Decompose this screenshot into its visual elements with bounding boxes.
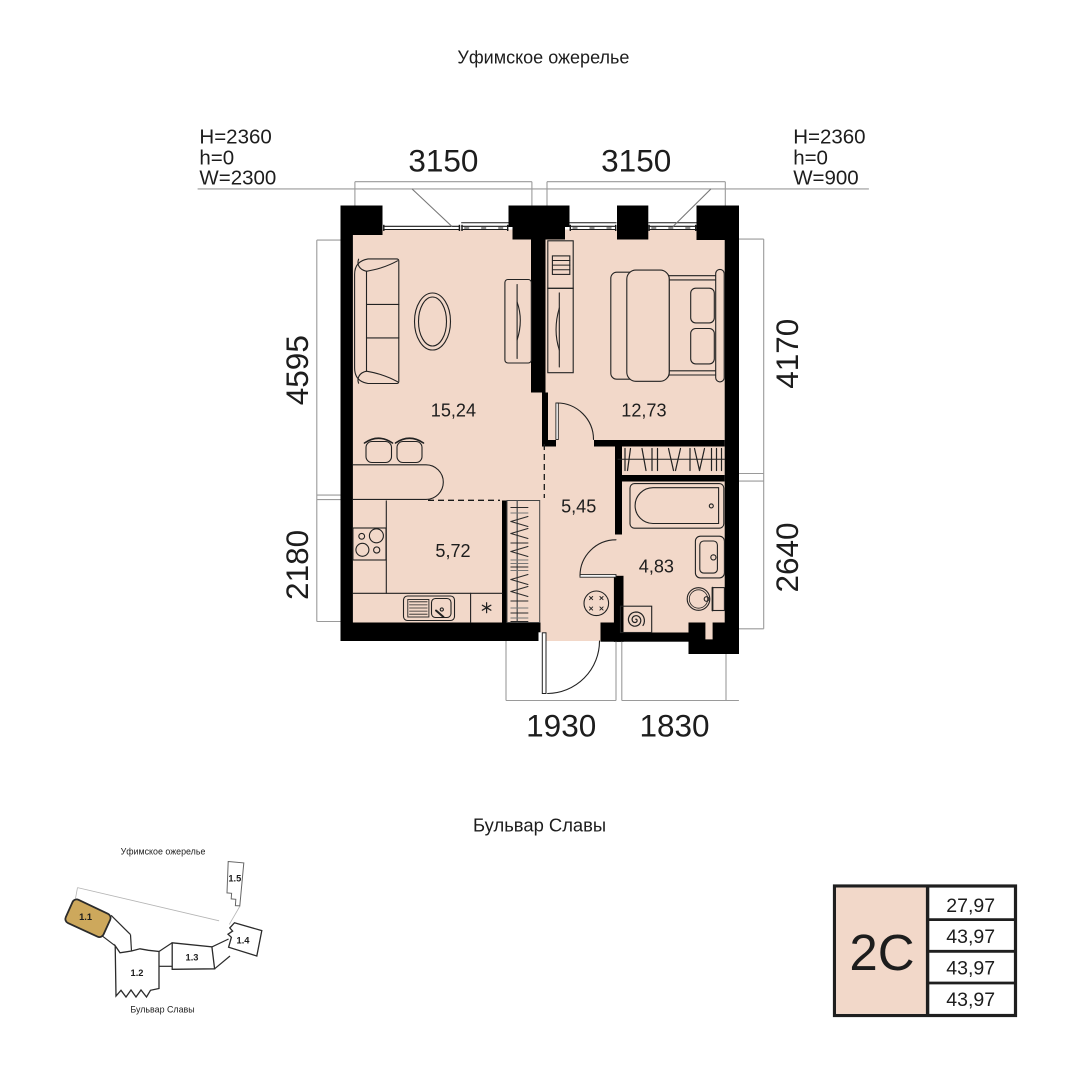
svg-text:1.2: 1.2 xyxy=(131,968,144,978)
svg-text:2С: 2С xyxy=(849,924,914,981)
svg-text:43,97: 43,97 xyxy=(946,926,995,948)
svg-text:H=2360: H=2360 xyxy=(199,125,271,148)
svg-text:Бульвар Славы: Бульвар Славы xyxy=(473,814,606,835)
svg-text:4170: 4170 xyxy=(769,319,805,389)
svg-text:2180: 2180 xyxy=(279,530,315,600)
svg-text:15,24: 15,24 xyxy=(431,400,476,420)
svg-text:27,97: 27,97 xyxy=(946,895,995,917)
svg-text:3150: 3150 xyxy=(408,143,478,179)
svg-text:1.3: 1.3 xyxy=(186,953,199,963)
svg-text:W=2300: W=2300 xyxy=(199,166,276,189)
svg-text:Уфимское ожерелье: Уфимское ожерелье xyxy=(121,847,206,857)
svg-text:1.5: 1.5 xyxy=(228,873,241,883)
svg-text:Уфимское ожерелье: Уфимское ожерелье xyxy=(457,48,629,68)
svg-text:W=900: W=900 xyxy=(793,166,859,189)
svg-text:1930: 1930 xyxy=(526,708,596,744)
svg-text:3150: 3150 xyxy=(601,143,671,179)
svg-text:4,83: 4,83 xyxy=(639,556,674,576)
svg-text:5,45: 5,45 xyxy=(561,496,596,516)
svg-text:5,72: 5,72 xyxy=(435,541,470,561)
svg-text:43,97: 43,97 xyxy=(946,989,995,1011)
svg-text:1830: 1830 xyxy=(639,708,709,744)
svg-text:4595: 4595 xyxy=(279,335,315,405)
svg-text:43,97: 43,97 xyxy=(946,957,995,979)
svg-text:1.1: 1.1 xyxy=(79,912,92,922)
svg-text:1.4: 1.4 xyxy=(237,936,251,946)
svg-text:2640: 2640 xyxy=(769,522,805,592)
svg-text:Бульвар Славы: Бульвар Славы xyxy=(130,1005,194,1015)
svg-text:H=2360: H=2360 xyxy=(793,125,865,148)
svg-text:12,73: 12,73 xyxy=(621,400,666,420)
